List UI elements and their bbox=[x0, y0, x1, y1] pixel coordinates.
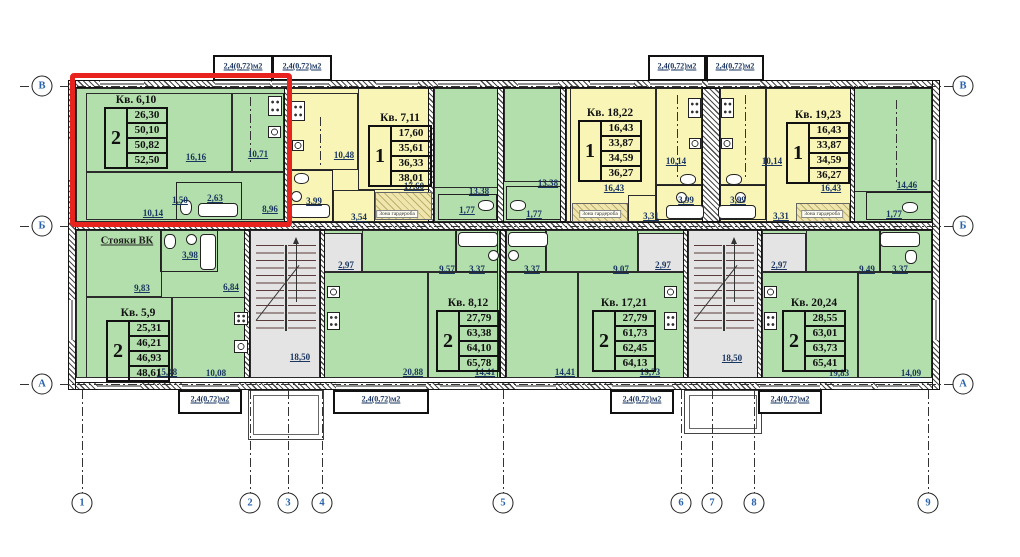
axis-column-marker: 6 bbox=[671, 493, 692, 514]
dimension-label: 14,46 bbox=[897, 180, 917, 190]
balcony-area-label: 2,4(0,72)м2 bbox=[191, 395, 230, 404]
dimension-label: 3,37 bbox=[524, 264, 540, 274]
dimension-label: 18,50 bbox=[290, 352, 310, 362]
area-value: 33,87 bbox=[810, 139, 848, 154]
balcony-area-label: 2,4(0,72)м2 bbox=[362, 395, 401, 404]
bathtub-icon bbox=[290, 204, 330, 218]
area-values: 28,5563,0163,7365,41 bbox=[806, 312, 844, 370]
dimension-label: 1,77 bbox=[886, 209, 902, 219]
dimension-label: 13,38 bbox=[538, 178, 558, 188]
apartment-info-table: Кв. 19,23116,4333,8734,5936,27 bbox=[786, 109, 850, 184]
balcony-area-label: 2,4(0,72)м2 bbox=[623, 395, 662, 404]
axis-row-marker: Б bbox=[32, 216, 53, 237]
toilet-icon bbox=[164, 234, 176, 249]
area-value: 46,93 bbox=[130, 352, 168, 367]
area-value: 36,33 bbox=[392, 157, 430, 172]
apartment-info-table: Кв. 7,11117,6035,6136,3338,01 bbox=[368, 112, 432, 187]
balcony-area-label: 2,4(0,72)м2 bbox=[771, 395, 810, 404]
stair-steps bbox=[288, 245, 316, 331]
axis-row-marker: А bbox=[32, 374, 53, 395]
dimension-label: 10,48 bbox=[334, 150, 354, 160]
area-value: 65,41 bbox=[806, 357, 844, 370]
center-line bbox=[896, 100, 897, 183]
dimension-label: 3,54 bbox=[351, 212, 367, 222]
wall bbox=[932, 80, 940, 390]
area-values: 16,4333,8734,5936,27 bbox=[602, 122, 640, 180]
apartment-info-table: Кв. 8,12227,7963,3864,1065,78 bbox=[436, 297, 500, 372]
dimension-label: 1,77 bbox=[459, 205, 475, 215]
area-value: 25,31 bbox=[130, 322, 168, 337]
sink-icon bbox=[764, 286, 777, 298]
axis-row-marker: В bbox=[953, 76, 974, 97]
room-count: 2 bbox=[108, 322, 130, 380]
dimension-label: 14,41 bbox=[555, 367, 575, 377]
room-count: 1 bbox=[788, 124, 810, 182]
room bbox=[434, 88, 498, 188]
axis-line bbox=[712, 390, 713, 493]
area-value: 35,61 bbox=[392, 142, 430, 157]
stair-steps bbox=[726, 245, 754, 331]
area-value: 34,59 bbox=[810, 154, 848, 169]
bathtub-icon bbox=[666, 205, 704, 219]
dimension-label: 2,97 bbox=[771, 260, 787, 270]
stair-arrow-up-icon bbox=[293, 237, 299, 244]
bathtub-icon bbox=[458, 232, 498, 247]
stair-arrow-line bbox=[734, 244, 735, 302]
sink-icon bbox=[291, 191, 302, 202]
apartment-areas-box: 116,4333,8734,5936,27 bbox=[786, 122, 850, 184]
wall bbox=[500, 230, 506, 378]
wall bbox=[320, 230, 325, 378]
area-value: 63,01 bbox=[806, 327, 844, 342]
balcony-area-label: 2,4(0,72)м2 bbox=[716, 62, 755, 71]
apartment-info-table: Кв. 20,24228,5563,0163,7365,41 bbox=[782, 297, 846, 372]
room-count: 1 bbox=[580, 122, 602, 180]
stove-icon bbox=[234, 312, 248, 325]
dimension-label: 9,83 bbox=[134, 283, 150, 293]
area-value: 48,61 bbox=[130, 367, 168, 380]
dimension-label: 1,77 bbox=[526, 209, 542, 219]
axis-line bbox=[288, 390, 289, 493]
room-count: 2 bbox=[784, 312, 806, 370]
apartment-info-table: Кв. 5,9225,3146,2146,9348,61 bbox=[106, 307, 170, 382]
apartment-info-table: Кв. 18,22116,4333,8734,5936,27 bbox=[578, 107, 642, 182]
room-count: 2 bbox=[438, 312, 460, 370]
dimension-label: 3,99 bbox=[730, 195, 746, 205]
wall bbox=[683, 230, 688, 378]
apartment-areas-box: 225,3146,2146,9348,61 bbox=[106, 320, 170, 382]
room bbox=[854, 88, 932, 192]
apartment-number: Кв. 17,21 bbox=[592, 297, 656, 310]
apartment-areas-box: 116,4333,8734,5936,27 bbox=[578, 120, 642, 182]
stair-arrow-up-icon bbox=[731, 237, 737, 244]
area-value: 64,10 bbox=[460, 342, 498, 357]
axis-line bbox=[754, 390, 755, 493]
toilet-icon bbox=[680, 174, 696, 185]
balcony-area-label: 2,4(0,72)м2 bbox=[224, 62, 263, 71]
stair-rail bbox=[285, 245, 287, 331]
wall bbox=[497, 88, 504, 222]
axis-column-marker: 7 bbox=[702, 493, 723, 514]
dimension-label: 10,08 bbox=[206, 368, 226, 378]
sink-icon bbox=[689, 138, 701, 149]
dimension-label: 3,37 bbox=[892, 264, 908, 274]
axis-line bbox=[503, 390, 504, 493]
toilet-icon bbox=[510, 200, 526, 211]
sink-icon bbox=[234, 340, 248, 353]
apartment-number: Кв. 5,9 bbox=[106, 307, 170, 320]
wardrobe-zone-label: Зона гардероба bbox=[801, 210, 843, 218]
stove-icon bbox=[327, 312, 340, 330]
stove-icon bbox=[721, 98, 734, 118]
stove-icon bbox=[764, 312, 777, 330]
dimension-label: 9,49 bbox=[859, 264, 875, 274]
dimension-label: 10,14 bbox=[666, 156, 686, 166]
window bbox=[68, 300, 76, 340]
axis-line bbox=[681, 390, 682, 493]
dimension-label: 6,84 bbox=[223, 282, 239, 292]
dimension-label: 13,38 bbox=[469, 186, 489, 196]
entrance-porch bbox=[248, 390, 324, 440]
porch-inner-line bbox=[689, 395, 757, 429]
wardrobe-zone-label: Зона гардероба bbox=[579, 210, 621, 218]
sink-icon bbox=[488, 250, 499, 261]
dimension-label: 2,97 bbox=[655, 260, 671, 270]
toilet-icon bbox=[902, 202, 918, 213]
center-line bbox=[745, 95, 746, 180]
area-value: 63,38 bbox=[460, 327, 498, 342]
axis-row-marker: А bbox=[953, 374, 974, 395]
apartment-areas-box: 227,7961,7362,4564,13 bbox=[592, 310, 656, 372]
entrance-porch bbox=[684, 390, 762, 434]
dimension-label: 3,37 bbox=[469, 264, 485, 274]
area-value: 17,60 bbox=[392, 127, 430, 142]
axis-column-marker: 5 bbox=[493, 493, 514, 514]
wall bbox=[850, 88, 855, 222]
sink-icon bbox=[186, 234, 197, 245]
sink-icon bbox=[664, 286, 677, 298]
area-value: 65,78 bbox=[460, 357, 498, 370]
room bbox=[506, 272, 578, 378]
porch-inner-line bbox=[253, 395, 319, 435]
apartment-areas-box: 228,5563,0163,7365,41 bbox=[782, 310, 846, 372]
axis-row-marker: В bbox=[32, 76, 53, 97]
dimension-label: 2,97 bbox=[338, 260, 354, 270]
area-value: 62,45 bbox=[616, 342, 654, 357]
stove-icon bbox=[664, 312, 677, 330]
area-value: 36,27 bbox=[810, 169, 848, 182]
area-value: 64,13 bbox=[616, 357, 654, 370]
stair-arrow-line bbox=[296, 244, 297, 302]
area-values: 17,6035,6136,3338,01 bbox=[392, 127, 430, 185]
area-values: 16,4333,8734,5936,27 bbox=[810, 124, 848, 182]
area-values: 27,7961,7362,4564,13 bbox=[616, 312, 654, 370]
area-value: 38,01 bbox=[392, 172, 430, 185]
apartment-number: Кв. 8,12 bbox=[436, 297, 500, 310]
axis-column-marker: 2 bbox=[240, 493, 261, 514]
toilet-icon bbox=[726, 174, 742, 185]
axis-line bbox=[60, 384, 955, 385]
sink-icon bbox=[721, 138, 733, 149]
apartment-number: Кв. 20,24 bbox=[782, 297, 846, 310]
bathtub-icon bbox=[508, 232, 548, 247]
risers-label: Стояки ВК bbox=[101, 236, 154, 247]
axis-line bbox=[928, 390, 929, 493]
window bbox=[932, 140, 940, 180]
balcony-area-label: 2,4(0,72)м2 bbox=[283, 62, 322, 71]
dimension-label: 9,07 bbox=[613, 264, 629, 274]
area-value: 61,73 bbox=[616, 327, 654, 342]
toilet-icon bbox=[905, 250, 917, 264]
apartment-areas-box: 117,6035,6136,3338,01 bbox=[368, 125, 432, 187]
wall bbox=[244, 230, 250, 378]
area-value: 27,79 bbox=[460, 312, 498, 327]
area-value: 46,21 bbox=[130, 337, 168, 352]
sink-icon bbox=[292, 140, 304, 151]
apartment-info-table: Кв. 17,21227,7961,7362,4564,13 bbox=[592, 297, 656, 372]
sink-icon bbox=[327, 286, 340, 298]
area-values: 27,7963,3864,1065,78 bbox=[460, 312, 498, 370]
dimension-label: 3,98 bbox=[182, 250, 198, 260]
bathtub-icon bbox=[718, 205, 756, 219]
wall bbox=[757, 230, 762, 378]
area-value: 36,27 bbox=[602, 167, 640, 180]
toilet-icon bbox=[478, 200, 494, 211]
dimension-label: 3,99 bbox=[678, 195, 694, 205]
room-count: 2 bbox=[594, 312, 616, 370]
room bbox=[858, 272, 932, 378]
floor-plan: ВВББАА12345678916,1610,7110,141,502,638,… bbox=[0, 0, 1020, 557]
dimension-label: 10,14 bbox=[762, 156, 782, 166]
area-value: 16,43 bbox=[602, 122, 640, 137]
bathtub-icon bbox=[200, 234, 216, 270]
dimension-label: 18,50 bbox=[722, 353, 742, 363]
area-value: 28,55 bbox=[806, 312, 844, 327]
area-value: 33,87 bbox=[602, 137, 640, 152]
room bbox=[504, 88, 566, 182]
dimension-label: 3,31 bbox=[773, 211, 789, 221]
axis-line bbox=[82, 390, 83, 493]
dimension-label: 20,88 bbox=[403, 367, 423, 377]
area-values: 25,3146,2146,9348,61 bbox=[130, 322, 168, 380]
dimension-label: 3,31 bbox=[643, 211, 659, 221]
sink-icon bbox=[508, 250, 519, 261]
toilet-icon bbox=[294, 173, 309, 184]
dimension-label: 16,43 bbox=[604, 183, 624, 193]
apartment-number: Кв. 7,11 bbox=[368, 112, 432, 125]
axis-column-marker: 1 bbox=[72, 493, 93, 514]
stove-icon bbox=[291, 101, 305, 121]
area-value: 34,59 bbox=[602, 152, 640, 167]
apartment-number: Кв. 19,23 bbox=[786, 109, 850, 122]
wall bbox=[702, 88, 720, 222]
center-line bbox=[320, 117, 321, 167]
highlighted-apartment-outline bbox=[70, 73, 292, 227]
axis-row-marker: Б bbox=[953, 216, 974, 237]
axis-line bbox=[322, 390, 323, 493]
room-count: 1 bbox=[370, 127, 392, 185]
axis-column-marker: 4 bbox=[312, 493, 333, 514]
axis-column-marker: 8 bbox=[744, 493, 765, 514]
dimension-label: 3,99 bbox=[306, 196, 322, 206]
wall bbox=[560, 88, 566, 222]
window bbox=[932, 300, 940, 340]
axis-column-marker: 9 bbox=[918, 493, 939, 514]
wardrobe-zone-label: Зона гардероба bbox=[376, 210, 418, 218]
axis-line bbox=[250, 390, 251, 493]
apartment-number: Кв. 18,22 bbox=[578, 107, 642, 120]
axis-column-marker: 3 bbox=[278, 493, 299, 514]
area-value: 63,73 bbox=[806, 342, 844, 357]
dimension-label: 16,43 bbox=[821, 183, 841, 193]
balcony-area-label: 2,4(0,72)м2 bbox=[658, 62, 697, 71]
area-value: 16,43 bbox=[810, 124, 848, 139]
area-value: 27,79 bbox=[616, 312, 654, 327]
dimension-label: 9,57 bbox=[439, 264, 455, 274]
stair-rail bbox=[723, 245, 725, 331]
dimension-label: 14,09 bbox=[901, 368, 921, 378]
bathtub-icon bbox=[880, 232, 920, 247]
center-line bbox=[677, 95, 678, 180]
stove-icon bbox=[688, 98, 701, 118]
apartment-areas-box: 227,7963,3864,1065,78 bbox=[436, 310, 500, 372]
room bbox=[172, 297, 250, 378]
